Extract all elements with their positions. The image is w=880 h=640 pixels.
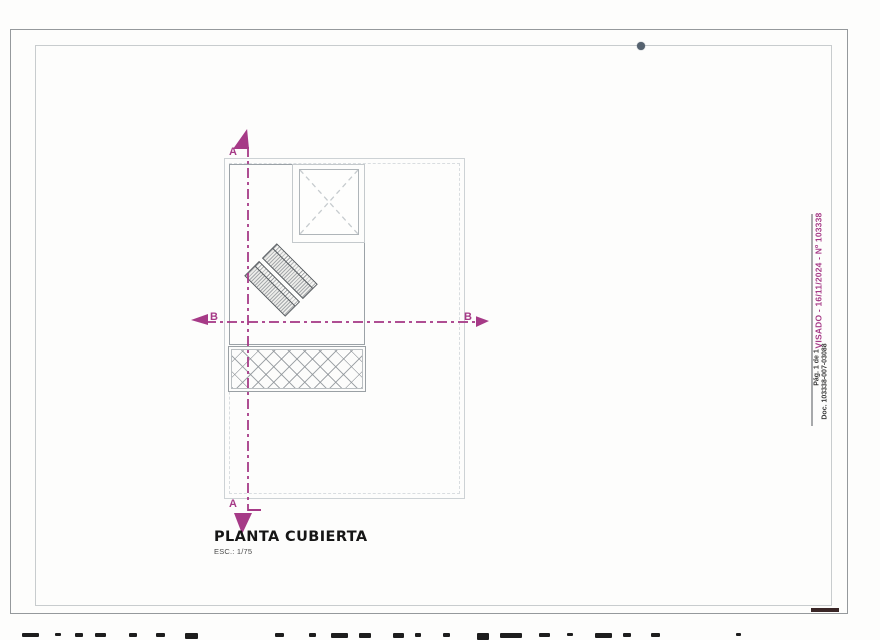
scan-mark — [359, 633, 371, 638]
scan-mark — [129, 633, 137, 637]
title-block: PLANTA CUBIERTA ESC.: 1/75 — [214, 529, 368, 556]
stamp-visado-text: VISADO - 16/11/2024 - Nº 103338 — [815, 201, 824, 361]
skylight-cross-icon — [300, 170, 358, 234]
scan-mark — [415, 633, 421, 637]
section-line-b — [206, 321, 478, 323]
eaves-hatch-fill — [231, 349, 363, 389]
scan-mark — [651, 633, 660, 637]
scan-mark — [75, 633, 83, 637]
bottom-right-scan-bar — [811, 608, 839, 612]
scan-artifact-strip — [0, 630, 880, 640]
section-label-b-right: B — [464, 312, 472, 323]
scan-mark — [500, 633, 522, 638]
section-line-a — [247, 147, 249, 511]
section-line-a-jog — [248, 509, 261, 511]
drawing-title: PLANTA CUBIERTA — [214, 529, 368, 545]
scanned-plan-sheet: A A B B PLANTA CUBIERTA ESC.: 1/75 VISAD… — [0, 0, 880, 640]
scan-ink-dot — [637, 42, 645, 50]
scan-mark — [275, 633, 284, 637]
scan-mark — [539, 633, 550, 637]
scan-mark — [477, 633, 489, 640]
section-label-a-top: A — [229, 147, 237, 158]
scan-mark — [55, 633, 61, 636]
scan-mark — [443, 633, 450, 637]
scan-mark — [595, 633, 612, 638]
scan-mark — [331, 633, 348, 638]
skylight-window — [299, 169, 359, 235]
scan-mark — [736, 633, 741, 636]
scan-mark — [623, 633, 631, 637]
scan-mark — [95, 633, 106, 637]
scan-mark — [393, 633, 404, 638]
scan-mark — [22, 633, 39, 637]
section-label-a-bottom: A — [229, 499, 237, 510]
scan-mark — [156, 633, 165, 637]
drawing-scale: ESC.: 1/75 — [214, 547, 368, 556]
section-label-b-left: B — [210, 312, 218, 323]
scan-mark — [567, 633, 573, 636]
stamp-doc-text: Doc. 103338-007-03088 — [821, 340, 830, 424]
scan-mark — [309, 633, 316, 637]
scan-mark — [185, 633, 198, 639]
